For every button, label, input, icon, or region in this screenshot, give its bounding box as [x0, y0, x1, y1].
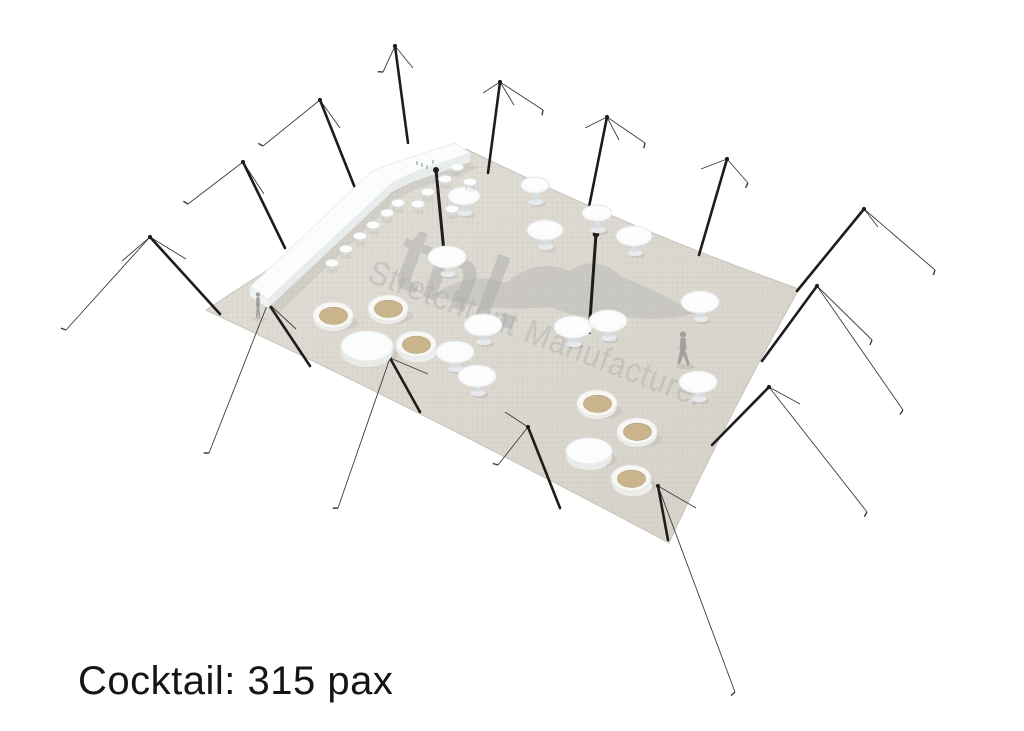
ground-stake	[61, 328, 66, 330]
ground-stake	[900, 410, 903, 414]
stool-seat	[439, 175, 452, 182]
tub-top	[403, 336, 431, 353]
tent-pole-group	[378, 44, 413, 143]
ground-stake	[864, 512, 867, 517]
person-head	[680, 331, 686, 337]
stool-seat	[381, 209, 394, 216]
table-top-highlight	[462, 367, 492, 382]
stool-seat	[354, 232, 367, 239]
scene-svg: tnl.Stretchtent Manufacturer	[0, 0, 1024, 731]
person-shadow	[676, 364, 694, 370]
table-top-highlight	[468, 316, 498, 331]
tent-pole	[588, 117, 607, 212]
guy-rope	[658, 486, 735, 692]
guy-rope	[607, 117, 645, 143]
tent-pole-group	[61, 235, 220, 330]
stool-seat	[412, 200, 425, 207]
tent-pole	[243, 162, 285, 248]
tent-pole	[488, 82, 500, 173]
guy-rope	[769, 387, 800, 404]
guy-rope	[817, 286, 903, 410]
tent-pole-group	[258, 98, 355, 188]
stool-seat	[464, 178, 477, 185]
guy-rope	[122, 237, 150, 261]
ground-stake	[493, 463, 498, 465]
table-top-highlight	[440, 343, 470, 358]
pole-cap	[393, 44, 397, 48]
tent-pole-group	[797, 207, 935, 291]
pole-cap	[526, 425, 530, 429]
table-top-highlight	[524, 178, 546, 189]
pole-cap	[148, 235, 152, 239]
render-canvas: tnl.Stretchtent Manufacturer Cocktail: 3…	[0, 0, 1024, 731]
guy-rope	[769, 387, 867, 512]
pole-cap	[498, 80, 502, 84]
pole-cap	[725, 157, 729, 161]
guy-rope	[500, 82, 543, 110]
ground-stake	[731, 692, 735, 696]
table-top-highlight	[685, 293, 715, 308]
pole-cap	[433, 167, 439, 173]
tub-top	[584, 395, 612, 412]
guy-rope	[483, 82, 500, 93]
pole-cap	[656, 484, 660, 488]
pole-cap	[862, 207, 866, 211]
ground-stake	[933, 270, 935, 275]
guy-rope	[263, 100, 320, 146]
guy-rope	[607, 117, 619, 140]
stool-seat	[367, 221, 380, 228]
tent-pole-group	[483, 80, 543, 173]
ground-stake	[542, 110, 543, 115]
pole-cap	[815, 284, 819, 288]
guy-rope	[585, 117, 607, 128]
tent-pole	[320, 100, 355, 188]
guy-rope	[701, 159, 727, 169]
tub-top	[624, 423, 652, 440]
stool-seat	[422, 188, 435, 195]
tub-top	[375, 300, 403, 317]
guy-rope	[864, 209, 878, 227]
ground-stake	[183, 201, 188, 204]
stool-seat	[340, 245, 353, 252]
caption-label: Cocktail: 315 pax	[78, 658, 393, 704]
table-top-highlight	[585, 206, 608, 217]
ground-stake	[644, 143, 645, 148]
pole-cap	[767, 385, 771, 389]
table-top-highlight	[683, 373, 713, 388]
guy-rope	[817, 286, 872, 340]
tub-top	[320, 307, 348, 324]
stool-seat	[446, 205, 459, 212]
tent-pole	[699, 159, 727, 255]
ground-stake	[870, 340, 872, 345]
ground-stake	[746, 183, 748, 188]
guy-rope	[383, 46, 395, 72]
tent-pole-group	[699, 157, 748, 255]
table-top-highlight	[558, 318, 588, 333]
tent-pole	[150, 237, 220, 314]
pole-cap	[241, 160, 245, 164]
tent-pole-group	[585, 115, 645, 212]
guy-rope	[864, 209, 935, 270]
stool-seat	[451, 163, 464, 170]
drum-top	[341, 331, 393, 361]
table-top-highlight	[593, 312, 623, 327]
table-top-highlight	[531, 222, 559, 236]
guy-rope	[727, 159, 748, 183]
pole-cap	[605, 115, 609, 119]
guy-rope	[188, 162, 243, 204]
person-head	[256, 292, 260, 296]
drum-top	[566, 438, 612, 464]
tent-pole-group	[183, 160, 285, 248]
pole-cap	[318, 98, 322, 102]
ground-stake	[258, 143, 263, 146]
tub-top	[618, 470, 646, 487]
tent-pole	[797, 209, 864, 291]
table-top-highlight	[432, 248, 462, 263]
guy-rope	[66, 237, 150, 330]
table-top-highlight	[620, 228, 648, 242]
stool-seat	[392, 199, 405, 206]
guy-rope	[500, 82, 514, 105]
stool-seat	[326, 259, 339, 266]
tent-pole	[395, 46, 408, 143]
